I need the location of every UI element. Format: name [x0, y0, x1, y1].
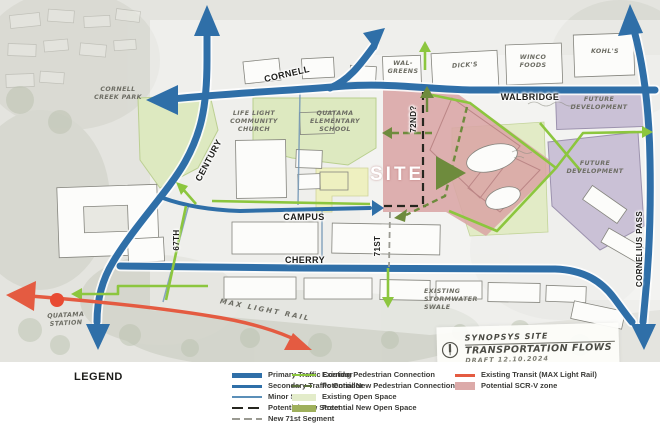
label-stormwater-swale: EXISTING STORMWATER SWALE	[424, 288, 482, 313]
label-quatama-school: QUATAMA ELEMENTARY SCHOOL	[306, 110, 364, 135]
legend-item: Existing Transit (MAX Light Rail)	[455, 371, 597, 379]
legend-column-transit: Existing Transit (MAX Light Rail) Potent…	[455, 371, 597, 390]
legend-item: Existing Open Space	[292, 393, 455, 401]
existing-open-space-swatch	[292, 394, 316, 401]
potential-ped-swatch	[292, 385, 316, 387]
legend-label: Potential SCR-V zone	[481, 382, 557, 390]
legend-column-pedestrian: Existing Pedestrian Connection Potential…	[292, 371, 455, 412]
potential-street-swatch	[232, 407, 262, 409]
label-quatama-station: QUATAMA STATION	[40, 311, 93, 330]
label-life-light-church: LIFE LIGHT COMMUNITY CHURCH	[226, 110, 282, 135]
existing-ped-swatch	[292, 374, 316, 376]
north-arrow-icon	[441, 338, 460, 362]
legend-item: Existing Pedestrian Connection	[292, 371, 455, 379]
street-label-cornelius-pass: CORNELIUS PASS	[636, 204, 644, 294]
label-future-dev-north: FUTURE DEVELOPMENT	[570, 96, 628, 112]
new-71st-swatch	[232, 418, 262, 420]
new-open-space-swatch	[292, 405, 316, 412]
street-label-campus: CAMPUS	[272, 213, 336, 222]
legend: LEGEND Primary Traffic Corridor Secondar…	[0, 362, 660, 440]
legend-item: New 71st Segment	[232, 415, 363, 423]
label-cornell-creek-park: CORNELL CREEK PARK	[88, 86, 148, 102]
site-label: SITE	[370, 165, 424, 184]
label-future-dev-south: FUTURE DEVELOPMENT	[566, 160, 624, 176]
legend-item: Potential SCR-V zone	[455, 382, 597, 390]
street-label-67th: 67TH	[173, 225, 181, 255]
legend-item: Potential New Pedestrian Connection	[292, 382, 455, 390]
legend-label: Existing Pedestrian Connection	[322, 371, 435, 379]
legend-label: Potential New Open Space	[322, 404, 417, 412]
primary-corridor-swatch	[232, 373, 262, 378]
transit-swatch	[455, 374, 475, 377]
quatama-station-dot	[50, 293, 64, 307]
legend-item: Potential New Open Space	[292, 404, 455, 412]
legend-label: Existing Open Space	[322, 393, 397, 401]
legend-label: New 71st Segment	[268, 415, 334, 423]
scrv-swatch	[455, 382, 475, 390]
label-winco: WINCO FOODS	[512, 54, 554, 70]
legend-label: Potential New Pedestrian Connection	[322, 382, 455, 390]
street-label-71st: 71ST	[374, 231, 382, 261]
legend-title: LEGEND	[74, 372, 123, 383]
minor-street-swatch	[232, 396, 262, 398]
label-kohls: KOHL'S	[586, 48, 624, 56]
site-transportation-map: CORNELL WALBRIDGE CAMPUS CHERRY CENTURY …	[0, 0, 660, 440]
street-label-walbridge: WALBRIDGE	[492, 93, 568, 102]
legend-label: Existing Transit (MAX Light Rail)	[481, 371, 597, 379]
secondary-corridor-swatch	[232, 385, 262, 388]
street-label-cherry: CHERRY	[276, 256, 334, 265]
street-label-72nd: 72ND?	[410, 101, 418, 137]
label-walgreens: WAL- GREENS	[386, 60, 420, 76]
